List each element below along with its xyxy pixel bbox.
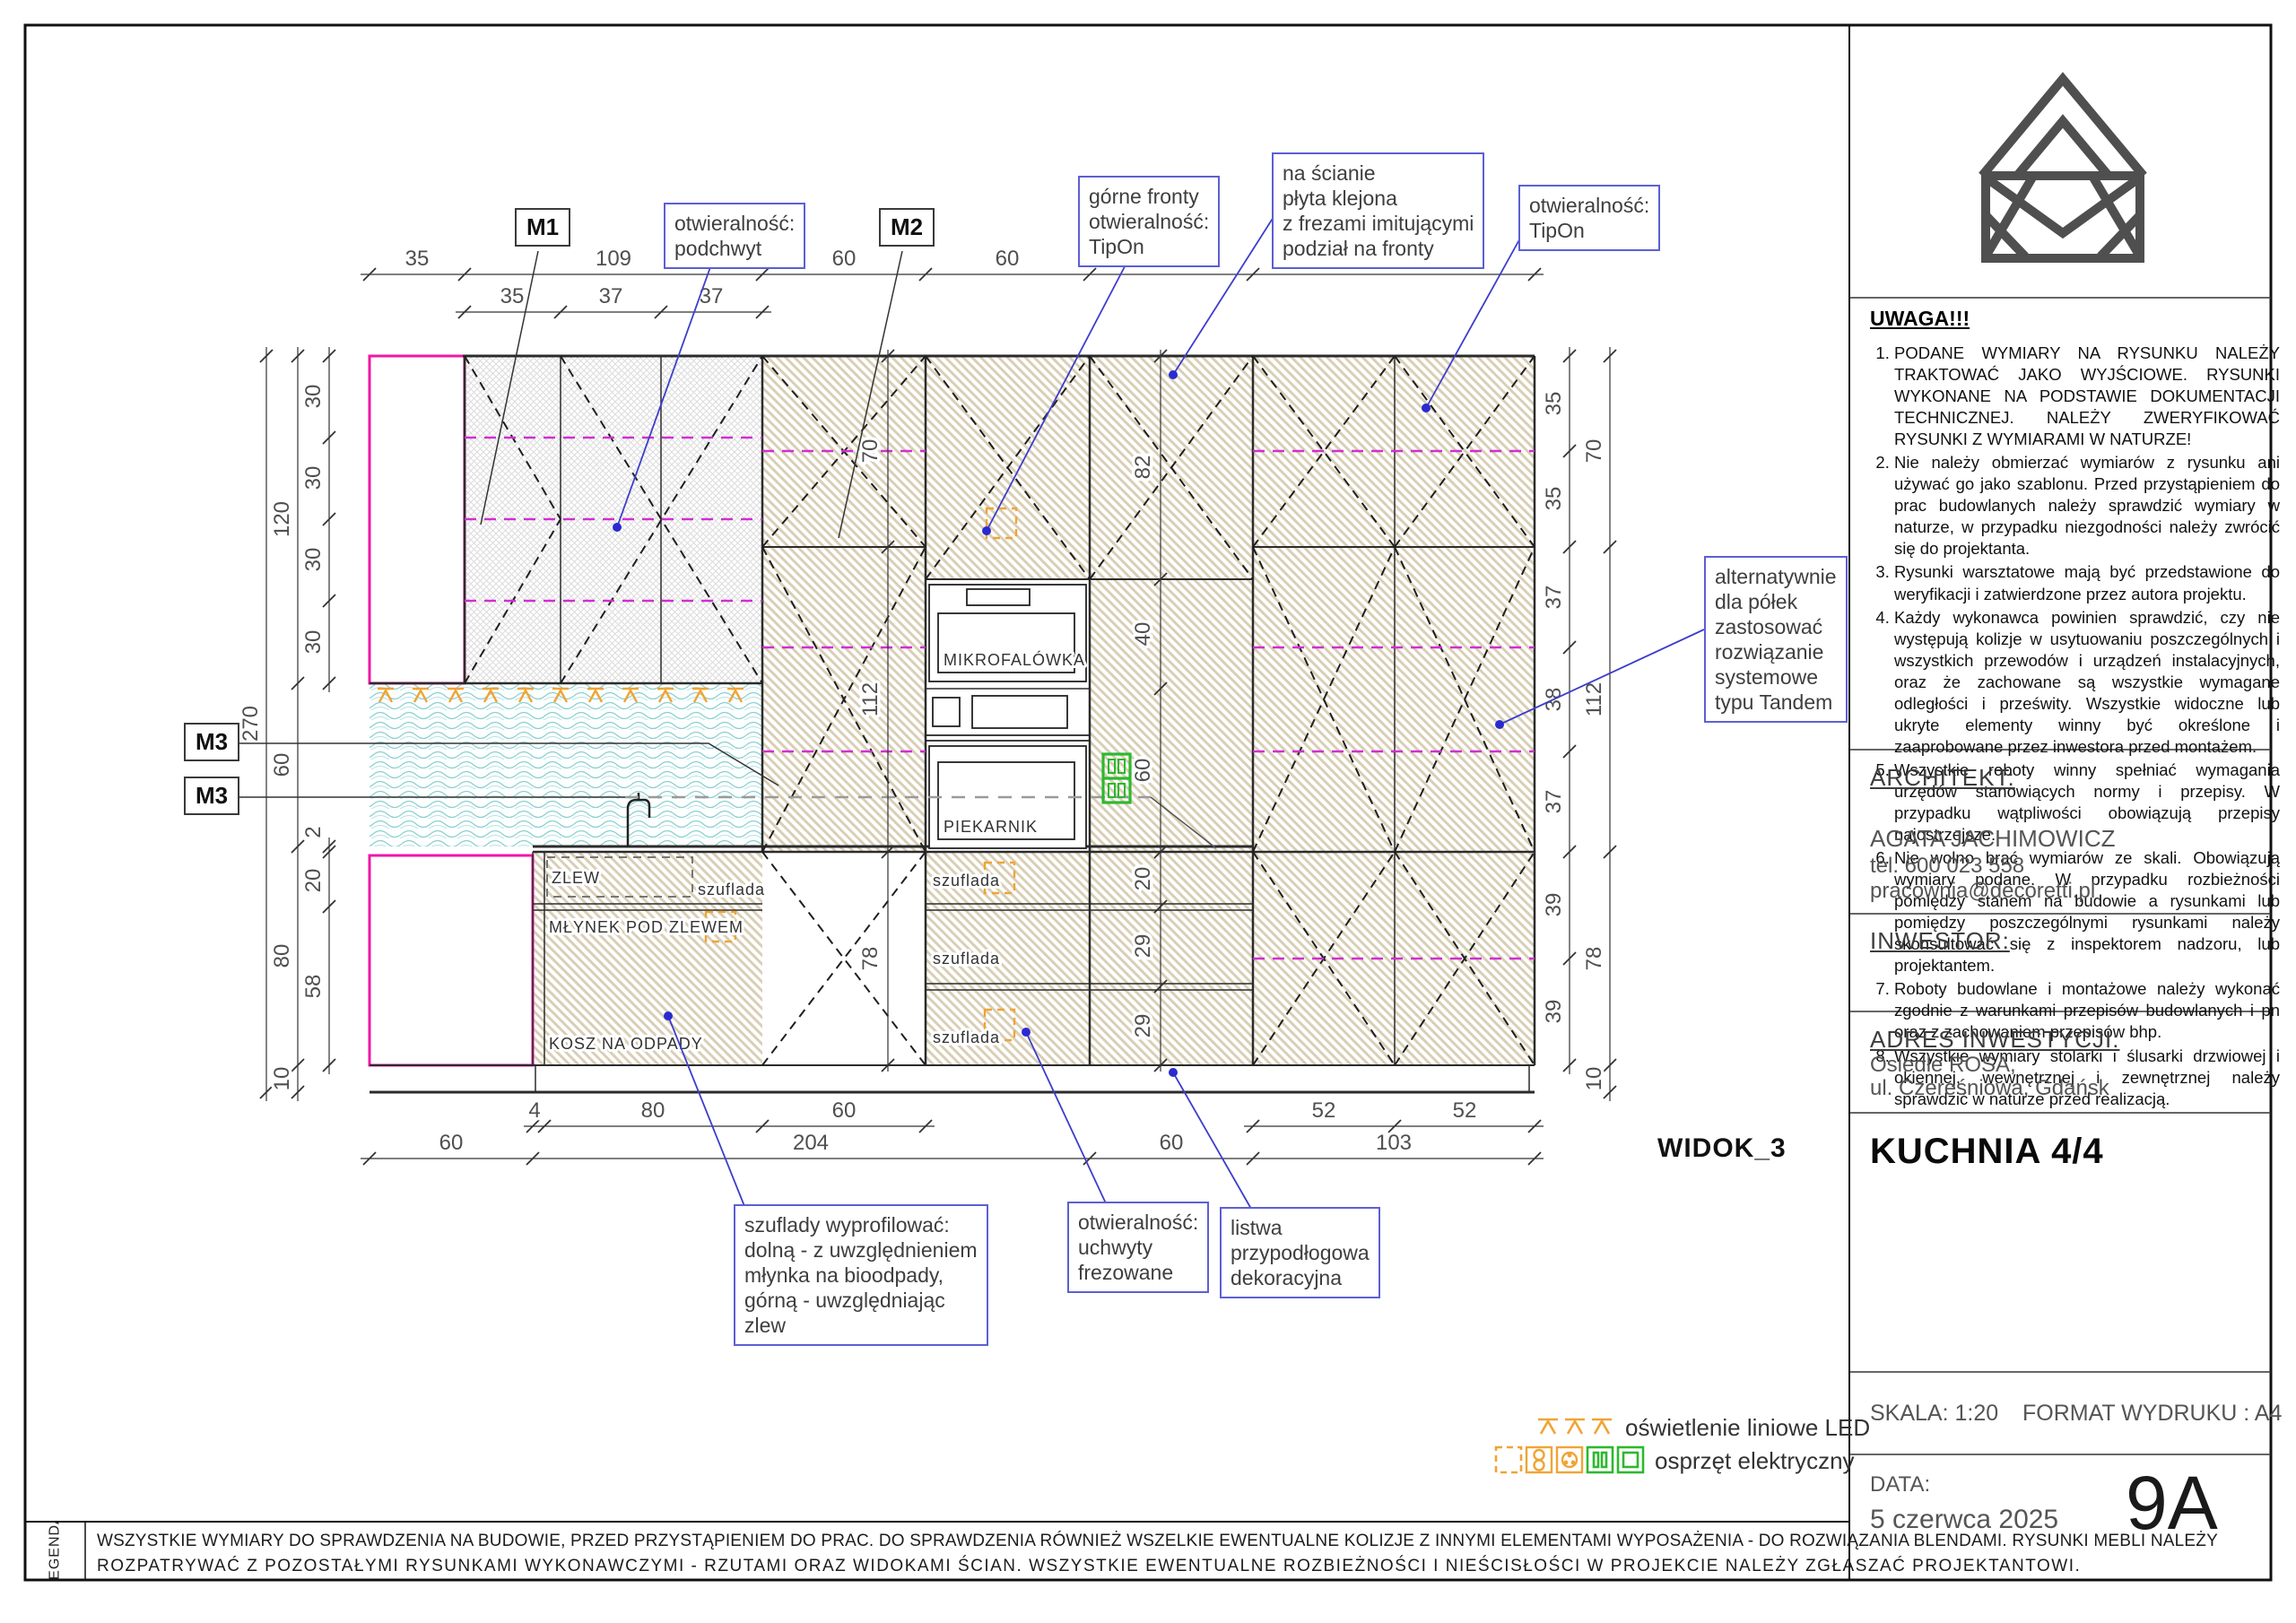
callout-tipon: otwieralność: TipOn xyxy=(1518,185,1660,251)
svg-text:4: 4 xyxy=(528,1098,540,1123)
svg-text:20: 20 xyxy=(1131,867,1155,891)
svg-text:80: 80 xyxy=(270,944,294,968)
legend-led-icons xyxy=(1538,1419,1612,1434)
oven-label: PIEKARNIK xyxy=(944,818,1038,836)
svg-text:60: 60 xyxy=(832,1098,857,1123)
svg-text:30: 30 xyxy=(301,630,326,655)
uwaga-notes: PODANE WYMIARY NA RYSUNKU NALEŻY TRAKTOW… xyxy=(1867,343,2283,1112)
grinder-label: MŁYNEK POD ZLEWEM xyxy=(549,918,744,936)
svg-text:60: 60 xyxy=(1131,759,1155,783)
svg-text:60: 60 xyxy=(996,247,1020,271)
svg-text:80: 80 xyxy=(641,1098,665,1123)
adres-line1: Osiedle ROSA, xyxy=(1870,1053,2016,1078)
footer-line2: ROZPATRYWAĆ Z POZOSTAŁYMI RYSUNKAMI WYKO… xyxy=(97,1557,2081,1576)
svg-text:112: 112 xyxy=(1582,682,1606,716)
note-item: Rysunki warsztatowe mają być przedstawio… xyxy=(1894,561,2280,604)
drawer-label: szuflada xyxy=(698,881,765,898)
svg-text:20: 20 xyxy=(301,869,326,893)
backsplash-tiles xyxy=(370,683,762,846)
svg-text:10: 10 xyxy=(1582,1067,1606,1091)
callout-na-scianie: na ścianie płyta klejona z frezami imitu… xyxy=(1272,152,1484,269)
svg-text:60: 60 xyxy=(1160,1131,1184,1155)
svg-text:109: 109 xyxy=(596,247,631,271)
svg-text:52: 52 xyxy=(1453,1098,1477,1123)
legend-electro-icons xyxy=(1496,1447,1643,1472)
svg-text:30: 30 xyxy=(301,548,326,572)
view-label: WIDOK_3 xyxy=(1657,1133,1787,1164)
sheet-title: KUCHNIA 4/4 xyxy=(1870,1132,2104,1172)
svg-text:78: 78 xyxy=(1582,947,1606,971)
callout-gorne-fronty: górne fronty otwieralność: TipOn xyxy=(1078,176,1220,267)
svg-text:40: 40 xyxy=(1131,622,1155,647)
footer-line1: WSZYSTKIE WYMIARY DO SPRAWDZENIA NA BUDO… xyxy=(97,1532,2218,1551)
adres-line2: ul. Czereśniowa, Gdańsk xyxy=(1870,1076,2109,1101)
data-value: 5 czerwca 2025 xyxy=(1870,1505,2058,1535)
svg-text:35: 35 xyxy=(1542,392,1566,416)
svg-text:58: 58 xyxy=(301,975,326,999)
note-item: Nie należy obmierzać wymiarów z rysunku … xyxy=(1894,452,2280,560)
svg-text:10: 10 xyxy=(270,1067,294,1091)
svg-text:2: 2 xyxy=(301,826,326,838)
svg-text:70: 70 xyxy=(858,439,883,464)
note-item: Każdy wykonawca powinien sprawdzić, czy … xyxy=(1894,607,2280,758)
svg-text:35: 35 xyxy=(500,284,525,308)
svg-text:78: 78 xyxy=(858,947,883,971)
legend-electro-label: osprzęt elektryczny xyxy=(1655,1447,1855,1475)
drawer-label: szuflada xyxy=(933,872,1000,890)
legend-led-label: oświetlenie liniowe LED xyxy=(1625,1414,1870,1442)
svg-text:60: 60 xyxy=(439,1131,464,1155)
svg-text:30: 30 xyxy=(301,466,326,490)
marker-m3: M3 xyxy=(184,723,239,761)
callout-listwa: listwa przypodłogowa dekoracyjna xyxy=(1220,1207,1380,1298)
architekt-label: ARCHITEKT: xyxy=(1870,764,2015,792)
svg-text:120: 120 xyxy=(270,501,294,537)
svg-text:37: 37 xyxy=(599,284,623,308)
svg-text:60: 60 xyxy=(832,247,857,271)
svg-text:29: 29 xyxy=(1131,1014,1155,1038)
format-label: FORMAT WYDRUKU : A4 xyxy=(2022,1401,2282,1427)
svg-text:270: 270 xyxy=(239,706,263,742)
legenda-cell: LEGENDA xyxy=(25,1522,85,1580)
data-label: DATA: xyxy=(1870,1472,1930,1497)
svg-text:204: 204 xyxy=(793,1131,829,1155)
svg-text:112: 112 xyxy=(858,682,883,716)
svg-text:60: 60 xyxy=(270,753,294,777)
callout-podchwyt: otwieralność: podchwyt xyxy=(664,203,805,269)
callout-uchwyty: otwieralność: uchwyty frezowane xyxy=(1067,1202,1209,1293)
callout-szuflady: szuflady wyprofilować: dolną - z uwzględ… xyxy=(734,1204,988,1346)
architekt-tel: tel. 600 023 558 xyxy=(1870,854,2024,879)
legenda-label: LEGENDA xyxy=(48,1522,64,1580)
architekt-name: AGATA JACHIMOWICZ xyxy=(1870,825,2115,853)
svg-text:39: 39 xyxy=(1542,1000,1566,1024)
inwestor-label: INWESTOR: xyxy=(1870,927,2010,955)
marker-m1: M1 xyxy=(515,208,570,247)
skala-label: SKALA: 1:20 xyxy=(1870,1401,1998,1427)
svg-text:30: 30 xyxy=(301,385,326,409)
marker-m3: M3 xyxy=(184,777,239,815)
uwaga-title: UWAGA!!! xyxy=(1870,307,1970,331)
svg-text:35: 35 xyxy=(1542,487,1566,511)
sink-label: ZLEW xyxy=(552,869,600,887)
microwave-label: MIKROFALÓWKA xyxy=(944,650,1085,669)
svg-text:52: 52 xyxy=(1312,1098,1336,1123)
studio-logo xyxy=(1982,79,2144,258)
architectural-drawing-page: 35 109 60 60 60 103 35 37 37 4 80 60 52 … xyxy=(0,0,2296,1623)
svg-text:39: 39 xyxy=(1542,893,1566,917)
svg-text:82: 82 xyxy=(1131,456,1155,480)
svg-text:103: 103 xyxy=(1376,1131,1412,1155)
architekt-email: pracownia@decoretti.pl xyxy=(1870,879,2095,904)
adres-label: ADRES INWESTYCJI: xyxy=(1870,1026,2119,1054)
svg-text:70: 70 xyxy=(1582,439,1606,464)
note-item: PODANE WYMIARY NA RYSUNKU NALEŻY TRAKTOW… xyxy=(1894,343,2280,450)
svg-text:35: 35 xyxy=(405,247,430,271)
marker-m2: M2 xyxy=(879,208,935,247)
callout-tandem: alternatywnie dla półek zastosować rozwi… xyxy=(1704,556,1848,723)
drawer-label: szuflada xyxy=(933,1028,1000,1046)
drawer-label: szuflada xyxy=(933,950,1000,968)
svg-text:29: 29 xyxy=(1131,934,1155,959)
svg-text:37: 37 xyxy=(1542,790,1566,814)
svg-text:37: 37 xyxy=(1542,586,1566,610)
